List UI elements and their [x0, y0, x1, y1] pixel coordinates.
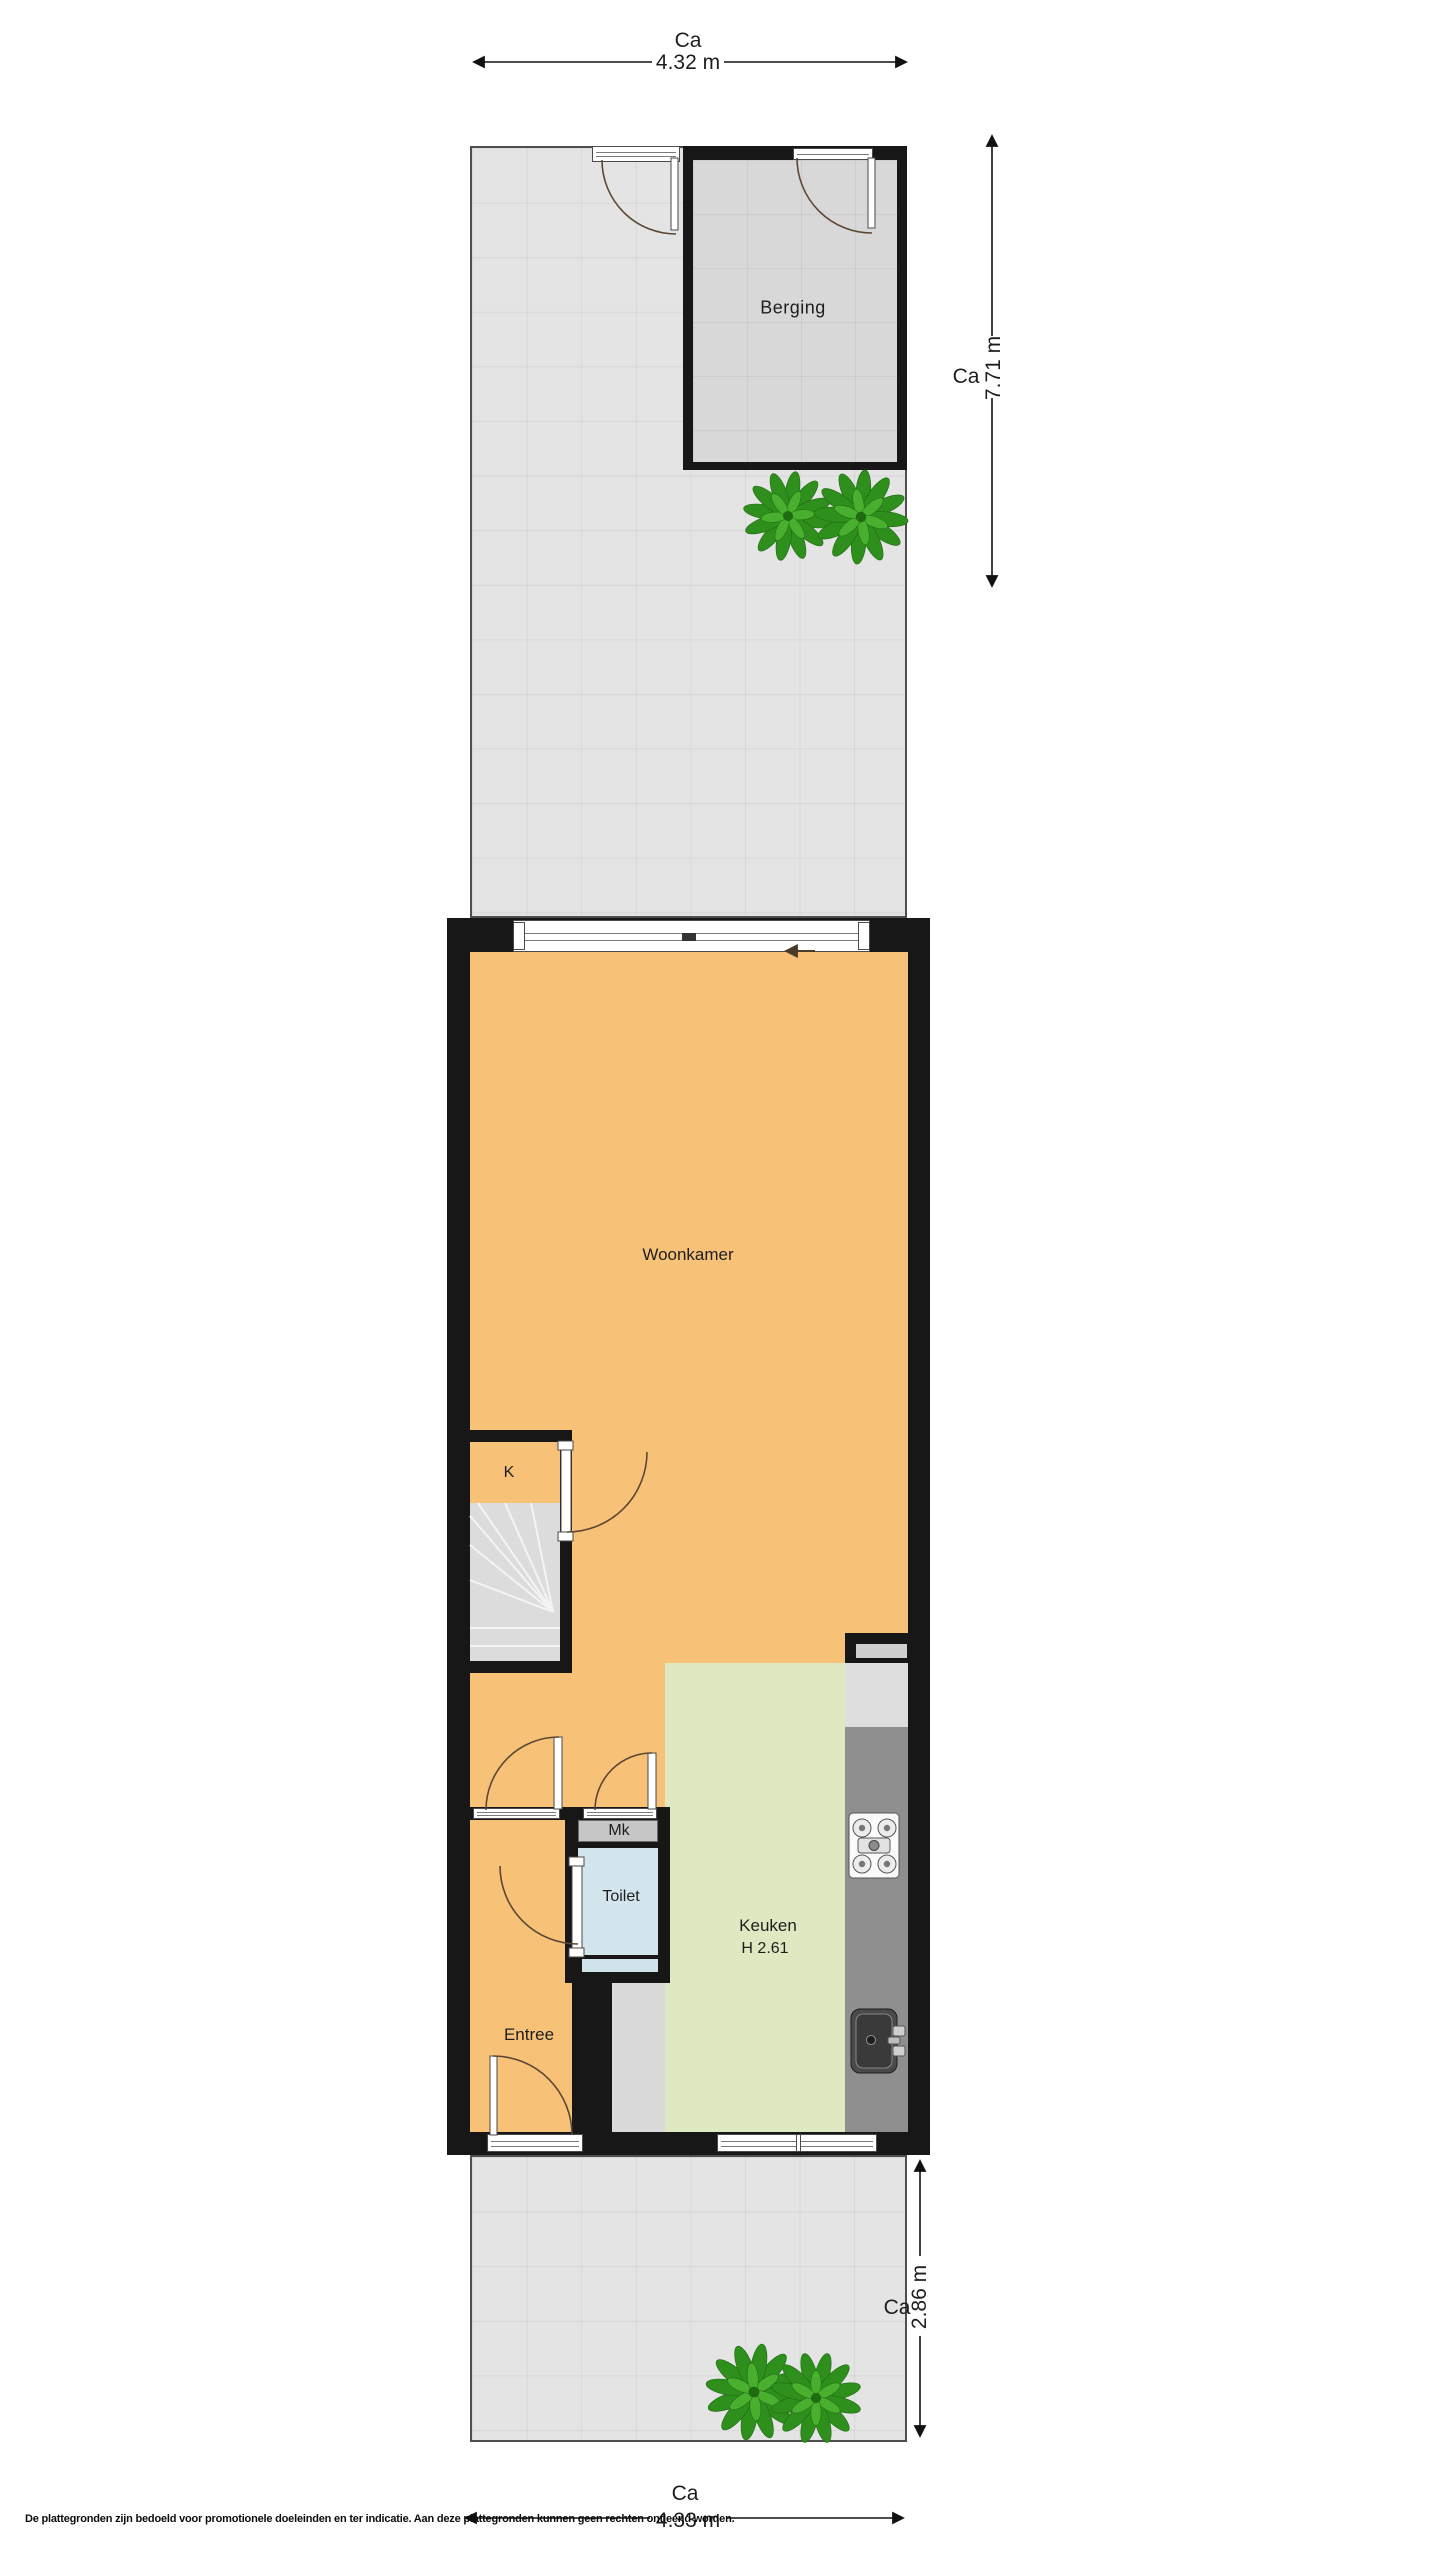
berging-door-threshold: [793, 148, 873, 160]
dim-top-prefix: Ca: [675, 29, 702, 53]
room-label-woonkamer: Woonkamer: [642, 1245, 733, 1265]
front-door-sill: [487, 2134, 583, 2152]
stairs-floor: [470, 1503, 560, 1661]
kast-floor: [470, 1442, 560, 1503]
dim-right-bottom-prefix: Ca: [884, 2296, 911, 2320]
room-label-meterkast: Mk: [608, 1822, 629, 1840]
room-label-kast: K: [504, 1464, 515, 1482]
kitchen-wall-niche: [856, 1644, 907, 1658]
room-label-toilet: Toilet: [602, 1888, 639, 1906]
dim-right-top-value: 7.71 m: [982, 336, 1006, 400]
room-label-keuken: Keuken: [739, 1916, 797, 1936]
floor-plan: Berging Woonkamer K Mk Toilet Keuken H 2…: [0, 0, 1440, 2560]
garden-gate: [592, 146, 680, 162]
room-label-entree: Entree: [504, 2025, 554, 2045]
dim-top-value: 4.32 m: [656, 51, 720, 75]
keuken-floor: [665, 1663, 845, 2132]
sliding-window: [513, 920, 870, 952]
dim-bottom-prefix: Ca: [672, 2482, 699, 2506]
dim-right-bottom-value: 2.86 m: [908, 2265, 932, 2329]
disclaimer-text: De plattegronden zijn bedoeld voor promo…: [25, 2513, 734, 2525]
window-mullion: [796, 2135, 801, 2151]
wall-below-toilet: [572, 1983, 612, 2132]
kitchen-window: [717, 2134, 877, 2152]
door-threshold-left: [473, 1808, 560, 1819]
window-jamb-left: [513, 922, 525, 950]
entree-floor: [470, 1820, 572, 2132]
window-jamb-right: [858, 922, 870, 950]
kitchen-counter: [845, 1727, 908, 2132]
window-handle: [682, 933, 696, 941]
toilet-window: [582, 1959, 658, 1972]
door-threshold-mk: [583, 1808, 657, 1819]
woonkamer-floor-3: [470, 1663, 665, 1807]
garden-bottom: [470, 2155, 907, 2442]
hall-floor: [612, 1983, 665, 2132]
dim-right-top-prefix: Ca: [953, 365, 980, 389]
kitchen-appliance: [845, 1663, 908, 1727]
room-label-berging: Berging: [760, 298, 826, 319]
room-label-keuken-height: H 2.61: [741, 1940, 788, 1958]
